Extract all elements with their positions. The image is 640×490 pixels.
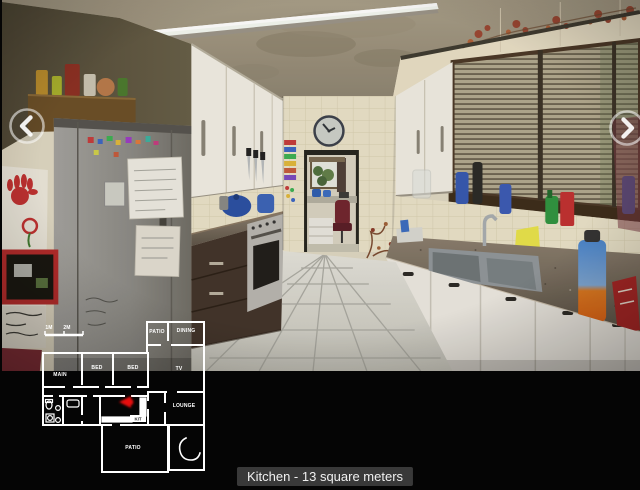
camera-position-marker <box>119 396 133 408</box>
scale-label-2m: 2M <box>63 325 70 331</box>
prev-photo-button[interactable] <box>7 106 47 146</box>
chevron-left-icon <box>7 106 47 146</box>
room-label-patio-bottom: PATIO <box>125 445 141 451</box>
room-label-kit: KIT <box>134 417 141 422</box>
floorplan-overlay[interactable]: 1M 2M <box>36 316 212 478</box>
room-label-dining: DINING <box>177 328 196 334</box>
chevron-right-icon <box>607 108 640 148</box>
room-label-tv: TV <box>176 366 183 372</box>
photo-viewer: 1M 2M <box>0 0 640 490</box>
next-photo-button[interactable] <box>607 108 640 148</box>
photo-caption: Kitchen - 13 square meters <box>237 467 413 486</box>
scale-label-1m: 1M <box>45 325 52 331</box>
floorplan-walls <box>43 322 204 472</box>
room-label-main: MAIN <box>53 372 67 378</box>
floorplan-scale-bar: 1M 2M <box>45 325 83 335</box>
room-label-bed2: BED <box>127 365 138 371</box>
room-label-bed1: BED <box>91 365 102 371</box>
room-label-patio-top: PATIO <box>149 329 165 335</box>
room-label-lounge: LOUNGE <box>173 403 196 409</box>
